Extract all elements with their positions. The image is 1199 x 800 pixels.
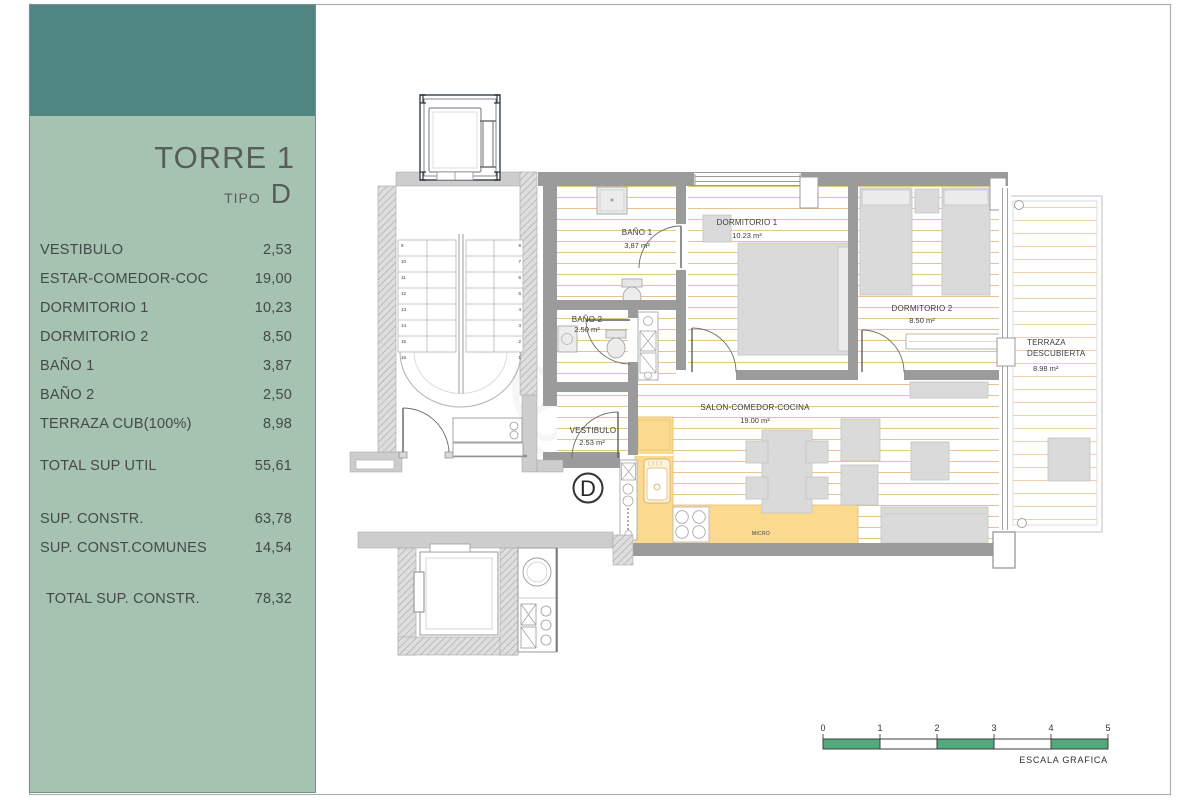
salon-sideboard [910,382,988,398]
counterweight [414,572,424,612]
dorm1-window [694,173,801,185]
staircase [398,234,523,407]
svg-text:16: 16 [401,355,407,360]
svg-text:10: 10 [401,259,407,264]
armchair [841,465,878,505]
svg-text:15: 15 [401,339,407,344]
dorm2-pillow-2 [944,190,988,205]
tipo-value: D [271,178,291,209]
tipo-label: TIPO [224,190,261,206]
unit-letter: D [580,476,596,501]
sup-comunes-row: SUP. CONST.COMUNES14,54 [40,540,292,569]
scale-caption: ESCALA GRAFICA [1019,755,1108,765]
bano2-label: BAÑO 2 [572,315,603,324]
unit-type: TIPOD [30,178,315,210]
lobby-fittings [399,408,523,458]
total-util-row: TOTAL SUP UTIL55,61 [40,458,292,487]
dining-chair [806,441,828,463]
svg-text:2: 2 [934,723,939,733]
dorm2-nightstand [915,189,939,213]
micro-label: MICRO [752,531,770,537]
sofa [881,507,988,543]
area-row: TERRAZA CUB(100%)8,98 [40,416,292,445]
area-row: DORMITORIO 28,50 [40,329,292,358]
cooktop [673,507,709,542]
dining-chair [806,477,828,499]
dorm1-area: 10.23 m² [732,231,762,240]
terrace-table [1048,438,1090,481]
bano1-label: BAÑO 1 [622,228,653,237]
door-swing [403,408,449,455]
vestibulo-label: VESTIBULO [570,426,617,435]
dorm2-area: 8.50 m² [909,316,935,325]
area-row: ESTAR-COMEDOR-COC19,00 [40,271,292,300]
svg-text:0: 0 [820,723,825,733]
svg-text:3: 3 [991,723,996,733]
summary-panel: TORRE 1 TIPOD VESTIBULO2,53 ESTAR-COMEDO… [29,4,316,793]
dorm1-bed [738,243,850,355]
dining-table [762,430,812,513]
coffee-table [911,442,949,480]
corridor-floor [658,310,676,382]
glazing-post [997,338,1015,366]
bano2-area: 2.50 m² [574,325,600,334]
svg-text:5: 5 [1105,723,1110,733]
area-row: BAÑO 22,50 [40,387,292,416]
dorm2-pillow-1 [862,190,910,205]
armchair [841,419,880,461]
dorm2-label: DORMITORIO 2 [892,304,953,313]
svg-text:1: 1 [877,723,882,733]
svg-text:13: 13 [401,307,407,312]
sup-constr-row: SUP. CONSTR.63,78 [40,511,292,540]
glazing-post [993,532,1015,568]
counterweight [483,121,493,167]
terraza-area: 8.98 m² [1033,364,1059,373]
dining-chair [746,477,768,499]
elevator-car [420,552,498,635]
salon-label: SALON-COMEDOR-COCINA [700,403,810,412]
elevator-door [430,544,470,552]
terraza-label-1: TERRAZA [1027,338,1066,347]
total-constr-row: TOTAL SUP. CONSTR.78,32 [40,591,292,620]
toilet-bowl [607,338,625,358]
laundry-column [638,312,658,380]
salon-area: 19.00 m² [740,416,770,425]
svg-text:14: 14 [401,323,407,328]
toilet-tank [606,330,626,338]
terraza-label-2: DESCUBIERTA [1027,349,1086,358]
dining-chair [746,441,768,463]
dorm1-label: DORMITORIO 1 [717,218,778,227]
wall-post [800,177,818,208]
kitchen-sink [644,459,670,503]
tower-title: TORRE 1 [30,140,315,176]
terrace-drain [1015,201,1024,210]
graphic-scale: 0 1 2 3 4 5 ESCALA GRAFICA [820,723,1110,765]
vestibulo-area: 2.53 m² [579,438,605,447]
elevator-upper [420,95,500,180]
elevator-car [429,108,481,172]
header-color-block [30,5,315,116]
area-table: VESTIBULO2,53 ESTAR-COMEDOR-COC19,00 DOR… [30,242,315,620]
toilet-tank [622,279,642,287]
svg-text:12: 12 [401,291,407,296]
terrace-drain [1018,519,1027,528]
unit-badge: D [574,474,603,503]
area-row: BAÑO 13,87 [40,358,292,387]
svg-text:11: 11 [401,275,406,280]
area-row: DORMITORIO 110,23 [40,300,292,329]
floorplan-page: 9 10 11 12 13 14 15 16 8 7 6 5 4 3 2 1 [0,0,1199,800]
area-row: VESTIBULO2,53 [40,242,292,271]
pantry-column [620,460,637,540]
svg-text:4: 4 [1048,723,1053,733]
elevator-lower [414,544,557,652]
bano1-area: 3,87 m² [624,241,650,250]
